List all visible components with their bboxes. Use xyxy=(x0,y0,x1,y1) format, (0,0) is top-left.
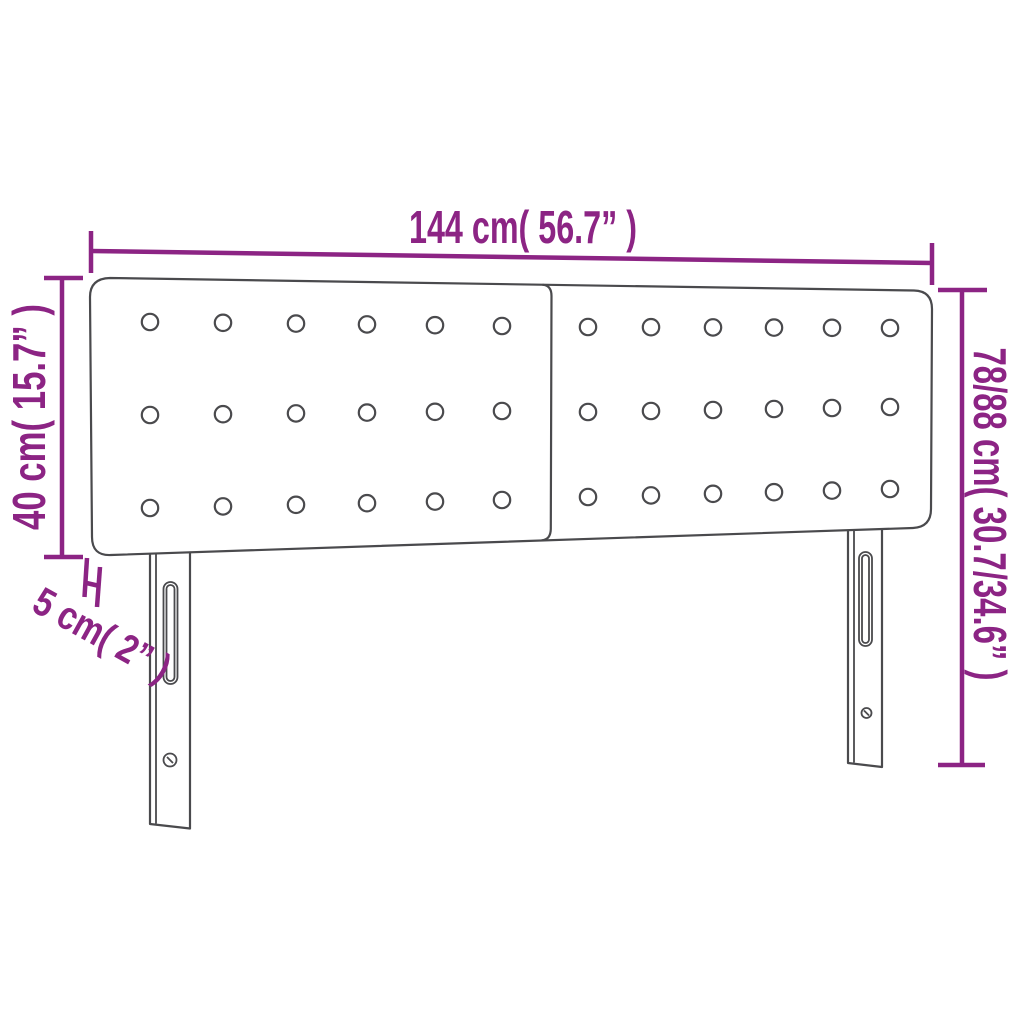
headboard-dimension-diagram: 144 cm( 56.7” ) 40 cm( 15.7” ) 78/88 cm(… xyxy=(0,0,1024,1024)
left-leg-screw-slash xyxy=(167,757,173,763)
tufting-button xyxy=(494,492,510,508)
tufting-button xyxy=(705,486,721,502)
tufting-button xyxy=(427,404,443,420)
tufting-button xyxy=(824,482,840,498)
diagram-canvas: 144 cm( 56.7” ) 40 cm( 15.7” ) 78/88 cm(… xyxy=(0,0,1024,1024)
tufting-button xyxy=(359,495,375,511)
tufting-button xyxy=(288,315,304,331)
tufting-button xyxy=(882,481,898,497)
left-leg xyxy=(150,553,190,829)
right-leg-screw-slash xyxy=(864,711,869,716)
tufting-button xyxy=(359,404,375,420)
tufting-button xyxy=(705,319,721,335)
tufting-button xyxy=(215,406,231,422)
board-height-dimension: 40 cm( 15.7” ) xyxy=(3,278,83,557)
tufting-button xyxy=(580,489,596,505)
tufting-button xyxy=(766,401,782,417)
tufting-button xyxy=(643,487,659,503)
tufting-button xyxy=(494,403,510,419)
total-height-dimension-label: 78/88 cm( 30.7/34.6” ) xyxy=(964,348,1016,681)
tufting-button xyxy=(580,404,596,420)
width-dimension-label: 144 cm( 56.7” ) xyxy=(409,201,637,253)
right-leg-slot xyxy=(859,552,872,646)
tufting-button xyxy=(494,318,510,334)
tufting-button xyxy=(580,319,596,335)
thickness-marker-crossbar xyxy=(87,583,100,586)
right-leg-slot-inner xyxy=(862,555,869,643)
right-leg xyxy=(848,530,882,768)
tufting-button xyxy=(427,493,443,509)
total-height-dimension: 78/88 cm( 30.7/34.6” ) xyxy=(938,290,1016,765)
tufting-button xyxy=(215,315,231,331)
tufting-button xyxy=(215,498,231,514)
panel-seam-line xyxy=(542,285,552,541)
tufting-button xyxy=(643,319,659,335)
board-height-dimension-label: 40 cm( 15.7” ) xyxy=(3,304,55,530)
tufting-button xyxy=(288,497,304,513)
tufting-button xyxy=(288,405,304,421)
width-dimension: 144 cm( 56.7” ) xyxy=(91,201,932,285)
tufting-button xyxy=(643,403,659,419)
tufting-button xyxy=(766,484,782,500)
tufting-button xyxy=(824,400,840,416)
tufting-button xyxy=(427,317,443,333)
tufting-button xyxy=(142,314,158,330)
tufting-button xyxy=(359,316,375,332)
headboard xyxy=(90,278,932,555)
tufting-button xyxy=(882,399,898,415)
tufting-buttons xyxy=(142,314,898,516)
tufting-button xyxy=(766,319,782,335)
thickness-marker-left-tick xyxy=(85,558,88,597)
tufting-button xyxy=(824,320,840,336)
tufting-button xyxy=(705,402,721,418)
tufting-button xyxy=(142,407,158,423)
tufting-button xyxy=(882,320,898,336)
tufting-button xyxy=(142,500,158,516)
